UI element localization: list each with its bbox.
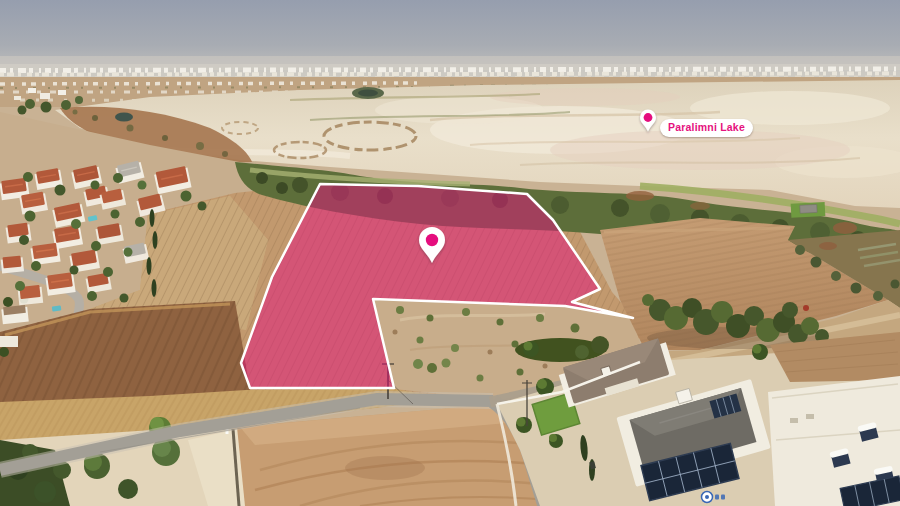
lake-label[interactable]: Paralimni Lake [660,119,753,137]
lake-pond [115,113,133,122]
location-pin-dot [426,234,438,246]
aerial-photo [0,0,900,506]
lakeside-shed [791,202,826,218]
location-pin-dot [644,113,653,122]
aerial-photo-stage: Paralimni Lake [0,0,900,506]
